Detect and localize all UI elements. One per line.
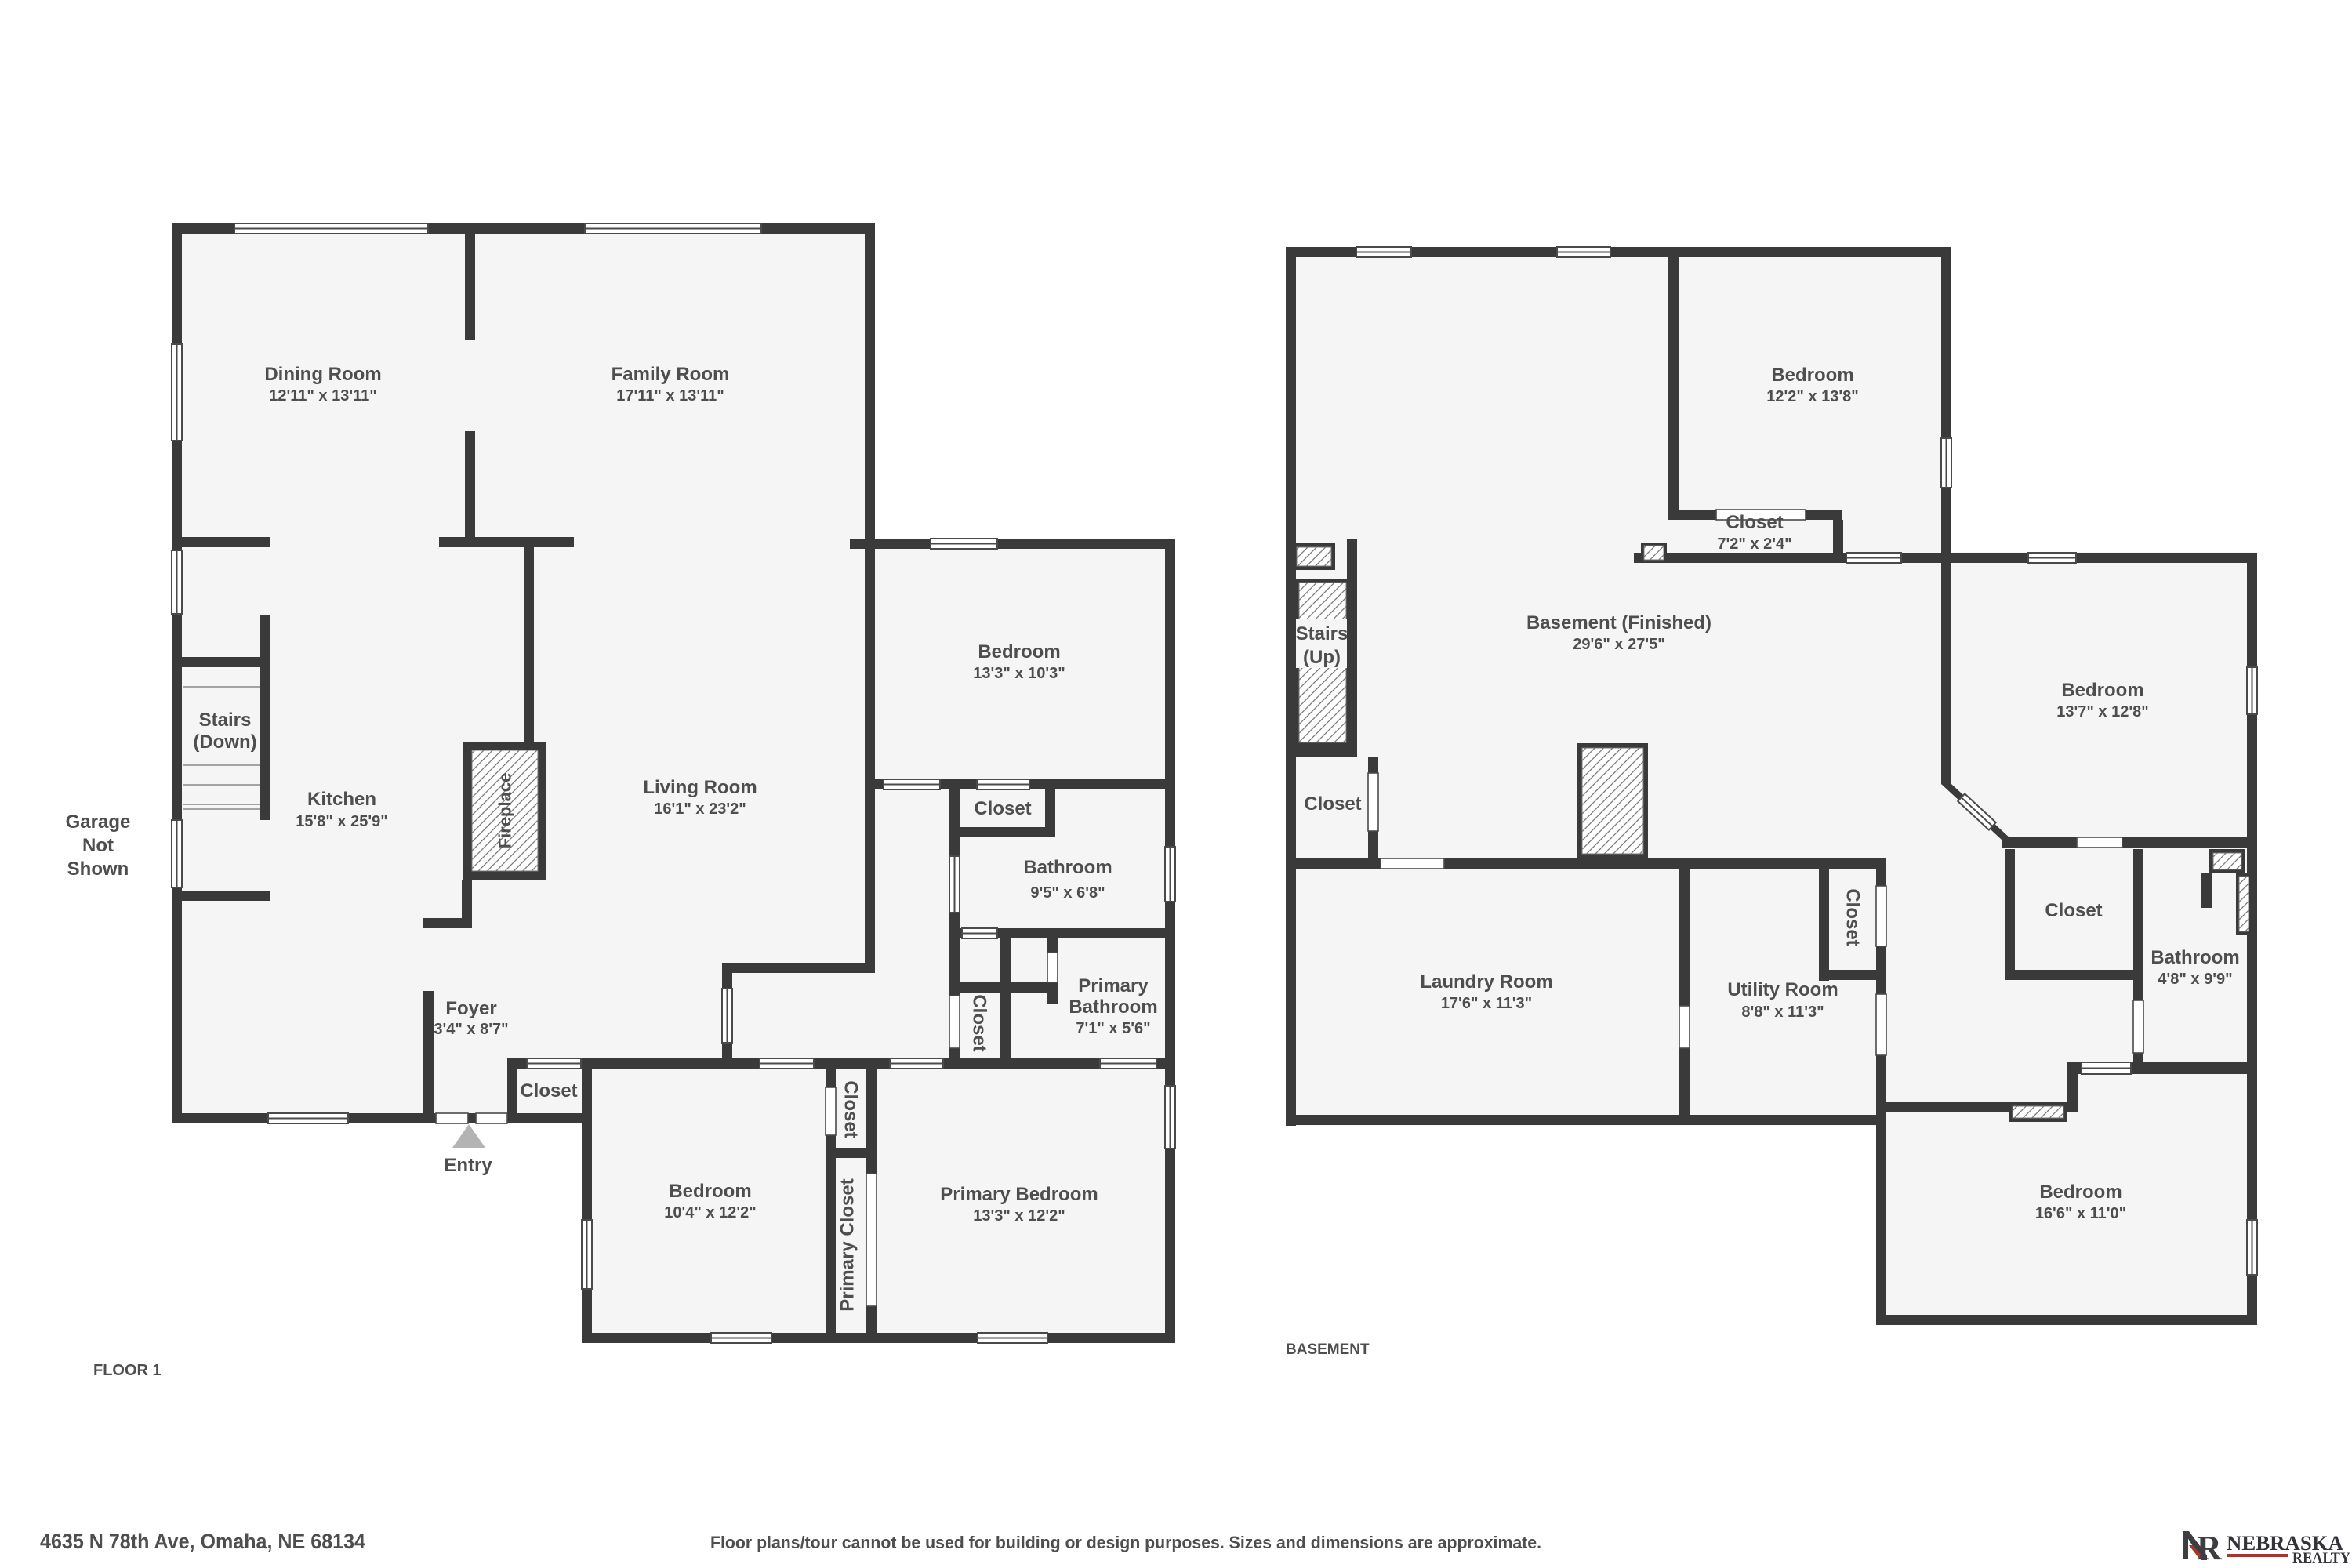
svg-text:Primary Bedroom: Primary Bedroom bbox=[940, 1184, 1098, 1205]
svg-text:Closet: Closet bbox=[2045, 900, 2102, 921]
svg-text:Garage: Garage bbox=[66, 811, 131, 833]
svg-text:Basement (Finished): Basement (Finished) bbox=[1526, 612, 1711, 633]
svg-text:17'6" x 11'3": 17'6" x 11'3" bbox=[1441, 995, 1532, 1012]
svg-text:Dining Room: Dining Room bbox=[264, 364, 381, 385]
svg-text:15'8" x 25'9": 15'8" x 25'9" bbox=[296, 813, 387, 830]
svg-text:Kitchen: Kitchen bbox=[307, 789, 376, 810]
svg-text:16'1" x 23'2": 16'1" x 23'2" bbox=[654, 800, 746, 818]
svg-text:12'2" x 13'8": 12'2" x 13'8" bbox=[1766, 388, 1858, 405]
svg-text:Bathroom: Bathroom bbox=[2151, 947, 2239, 968]
svg-text:Closet: Closet bbox=[1842, 888, 1864, 946]
svg-text:8'8" x 11'3": 8'8" x 11'3" bbox=[1741, 1004, 1824, 1021]
svg-text:Closet: Closet bbox=[974, 798, 1031, 819]
svg-text:Stairs: Stairs bbox=[1296, 623, 1348, 644]
svg-text:Bedroom: Bedroom bbox=[978, 641, 1060, 662]
svg-text:Bedroom: Bedroom bbox=[2039, 1181, 2122, 1203]
svg-text:13'3" x 10'3": 13'3" x 10'3" bbox=[973, 665, 1065, 682]
svg-text:Family Room: Family Room bbox=[612, 364, 730, 385]
svg-text:10'4" x 12'2": 10'4" x 12'2" bbox=[664, 1204, 756, 1221]
svg-text:Floor plans/tour cannot be use: Floor plans/tour cannot be used for buil… bbox=[710, 1533, 1541, 1552]
svg-text:Primary: Primary bbox=[1078, 975, 1149, 996]
svg-text:Fireplace: Fireplace bbox=[495, 773, 515, 849]
svg-text:Utility Room: Utility Room bbox=[1727, 979, 1838, 1000]
svg-text:7'2" x 2'4": 7'2" x 2'4" bbox=[1717, 535, 1791, 553]
svg-text:Primary Closet: Primary Closet bbox=[837, 1178, 858, 1311]
svg-text:Not: Not bbox=[82, 835, 114, 856]
svg-text:Laundry Room: Laundry Room bbox=[1420, 971, 1552, 993]
svg-text:Living Room: Living Room bbox=[643, 777, 757, 798]
svg-text:Bedroom: Bedroom bbox=[2061, 680, 2143, 701]
svg-text:Foyer: Foyer bbox=[445, 998, 496, 1019]
svg-text:(Down): (Down) bbox=[193, 731, 256, 753]
svg-text:(Up): (Up) bbox=[1303, 647, 1341, 668]
svg-text:Bathroom: Bathroom bbox=[1023, 857, 1112, 878]
svg-text:29'6" x 27'5": 29'6" x 27'5" bbox=[1573, 636, 1664, 653]
svg-text:3'4" x 8'7": 3'4" x 8'7" bbox=[434, 1021, 508, 1038]
svg-text:Closet: Closet bbox=[840, 1080, 862, 1138]
svg-text:9'5" x 6'8": 9'5" x 6'8" bbox=[1030, 884, 1105, 902]
svg-text:Closet: Closet bbox=[969, 994, 990, 1051]
svg-text:R: R bbox=[2197, 1529, 2223, 1567]
svg-text:BASEMENT: BASEMENT bbox=[1286, 1341, 1370, 1358]
svg-text:7'1" x 5'6": 7'1" x 5'6" bbox=[1076, 1020, 1150, 1037]
svg-text:17'11" x 13'11": 17'11" x 13'11" bbox=[616, 387, 724, 405]
svg-text:Bedroom: Bedroom bbox=[1771, 365, 1853, 386]
svg-text:4'8" x 9'9": 4'8" x 9'9" bbox=[2158, 971, 2232, 988]
svg-text:13'3" x 12'2": 13'3" x 12'2" bbox=[973, 1207, 1065, 1225]
svg-text:Closet: Closet bbox=[520, 1080, 577, 1102]
svg-text:Closet: Closet bbox=[1726, 512, 1783, 533]
svg-text:Stairs: Stairs bbox=[199, 710, 252, 731]
svg-text:REALTY: REALTY bbox=[2292, 1550, 2350, 1566]
svg-text:FLOOR 1: FLOOR 1 bbox=[93, 1362, 162, 1379]
svg-text:16'6" x 11'0": 16'6" x 11'0" bbox=[2035, 1205, 2126, 1222]
svg-text:Bedroom: Bedroom bbox=[669, 1181, 751, 1202]
svg-text:13'7" x 12'8": 13'7" x 12'8" bbox=[2056, 703, 2148, 720]
svg-text:Bathroom: Bathroom bbox=[1069, 996, 1157, 1018]
svg-text:Shown: Shown bbox=[67, 858, 129, 880]
svg-text:Entry: Entry bbox=[444, 1155, 492, 1176]
svg-text:Closet: Closet bbox=[1304, 793, 1361, 815]
svg-text:12'11" x 13'11": 12'11" x 13'11" bbox=[269, 387, 377, 405]
svg-text:4635 N 78th Ave, Omaha, NE 681: 4635 N 78th Ave, Omaha, NE 68134 bbox=[40, 1530, 365, 1553]
